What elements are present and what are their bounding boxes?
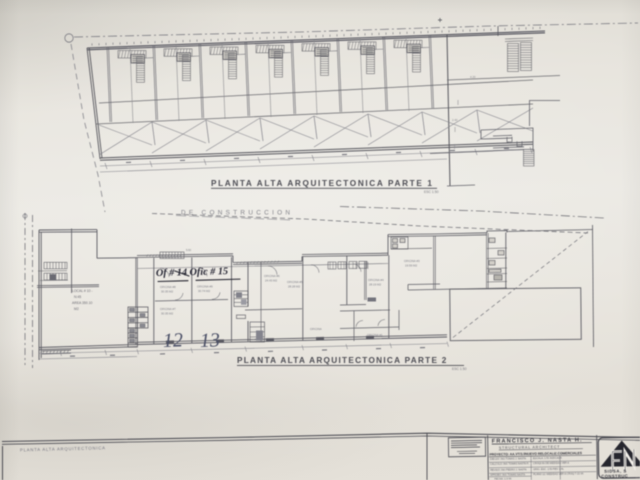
svg-text:30.74 M2: 30.74 M2 — [198, 289, 210, 293]
svg-text:ESC 1:50: ESC 1:50 — [452, 367, 467, 371]
svg-text:REVISO: ING PEDRO J. NASTA: REVISO: ING PEDRO J. NASTA — [490, 468, 527, 472]
svg-text:PLANO 12: MEDIDAS VER A CROQ 7: PLANO 12: MEDIDAS VER A CROQ 7-22-96 — [533, 472, 584, 476]
svg-text:ORIG. ESC. 1:50 REV 1 AL: ORIG. ESC. 1:50 REV 1 AL — [533, 468, 564, 471]
svg-text:PLANTA ALTA ARQUITECTONICA PAR: PLANTA ALTA ARQUITECTONICA PARTE 1 — [211, 179, 434, 188]
svg-text:OFICINA #3: OFICINA #3 — [404, 259, 420, 263]
svg-text:OFICINA #4: OFICINA #4 — [368, 278, 384, 282]
svg-text:Of # 14 Ofic # 15: Of # 14 Ofic # 15 — [156, 266, 228, 279]
svg-text:OFICINA: OFICINA — [310, 327, 322, 331]
svg-text:LOCAL # 10 -: LOCAL # 10 - — [72, 289, 93, 293]
svg-text:24.43 M2: 24.43 M2 — [265, 279, 277, 283]
svg-text:13: 13 — [199, 329, 220, 352]
svg-text:OFICINA #8: OFICINA #8 — [160, 285, 176, 289]
svg-text:N:45: N:45 — [74, 295, 81, 299]
svg-text:OFICINA #1: OFICINA #1 — [367, 333, 383, 337]
svg-text:CALCULO: ING TOMAS NASTA R.: CALCULO: ING TOMAS NASTA R. — [490, 462, 529, 466]
svg-text:2.40: 2.40 — [452, 118, 458, 122]
svg-text:APROBO: ING TOMAS NASTA: APROBO: ING TOMAS NASTA — [490, 473, 525, 477]
svg-text:ESC 1:50: ESC 1:50 — [424, 190, 439, 194]
svg-text:PLANTA ALTA ARQUITECTONICA PAR: PLANTA ALTA ARQUITECTONICA PARTE 2 — [237, 356, 448, 365]
svg-text:OFICINA #5: OFICINA #5 — [287, 280, 303, 284]
svg-text:DE CONSTRUCCION: DE CONSTRUCCION — [181, 210, 293, 217]
svg-text:CROQUIS DE MEDIDAS VER A: CROQUIS DE MEDIDAS VER A — [533, 462, 569, 466]
svg-text:4.20: 4.20 — [470, 75, 476, 79]
svg-text:12: 12 — [162, 329, 183, 352]
svg-text:AREA 350.10: AREA 350.10 — [72, 301, 92, 305]
svg-text:PLANTA ALTA ARQUITECTONICA: PLANTA ALTA ARQUITECTONICA — [20, 445, 106, 452]
svg-text:ESCALA: 1:50 INDICADA: ESCALA: 1:50 INDICADA — [533, 457, 562, 460]
svg-text:5.60: 5.60 — [186, 248, 192, 252]
svg-text:19.59 M2: 19.59 M2 — [405, 264, 417, 268]
svg-text:M2: M2 — [74, 307, 79, 311]
svg-text:OFICINA #6: OFICINA #6 — [264, 274, 280, 278]
svg-text:28.19 M2: 28.19 M2 — [369, 283, 381, 287]
svg-text:OFICINA #9: OFICINA #9 — [197, 285, 213, 289]
svg-text:30.35 M2: 30.35 M2 — [161, 312, 173, 316]
svg-text:DIBUJO: ING TOMAS J. NASTA: DIBUJO: ING TOMAS J. NASTA — [490, 457, 526, 461]
svg-text:28.28 M2: 28.28 M2 — [288, 285, 300, 289]
svg-text:OFICINA #7: OFICINA #7 — [160, 307, 176, 311]
svg-text:CONSTRUC: CONSTRUC — [601, 473, 628, 478]
svg-text:30.35 M2: 30.35 M2 — [161, 290, 173, 294]
